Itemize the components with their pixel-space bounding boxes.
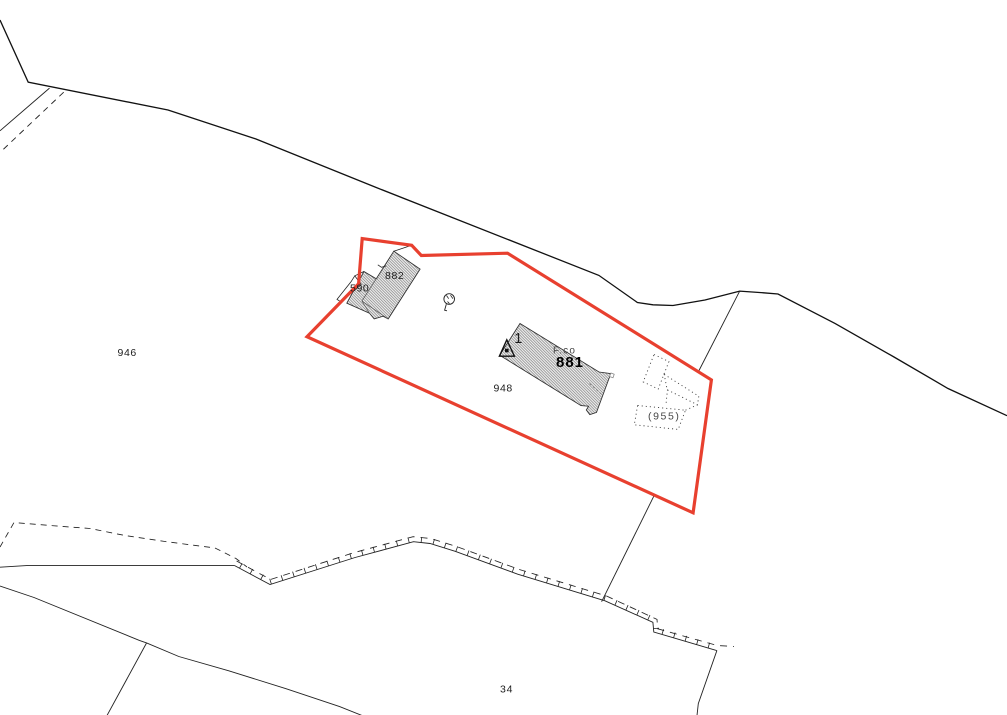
svg-text:34: 34 [500, 683, 513, 695]
svg-text:1: 1 [514, 331, 522, 347]
svg-text:881: 881 [556, 354, 584, 371]
svg-text:590: 590 [350, 282, 369, 294]
svg-text:948: 948 [494, 383, 513, 395]
svg-text:(955): (955) [648, 411, 681, 423]
svg-text:946: 946 [118, 347, 137, 359]
svg-text:882: 882 [385, 270, 404, 282]
